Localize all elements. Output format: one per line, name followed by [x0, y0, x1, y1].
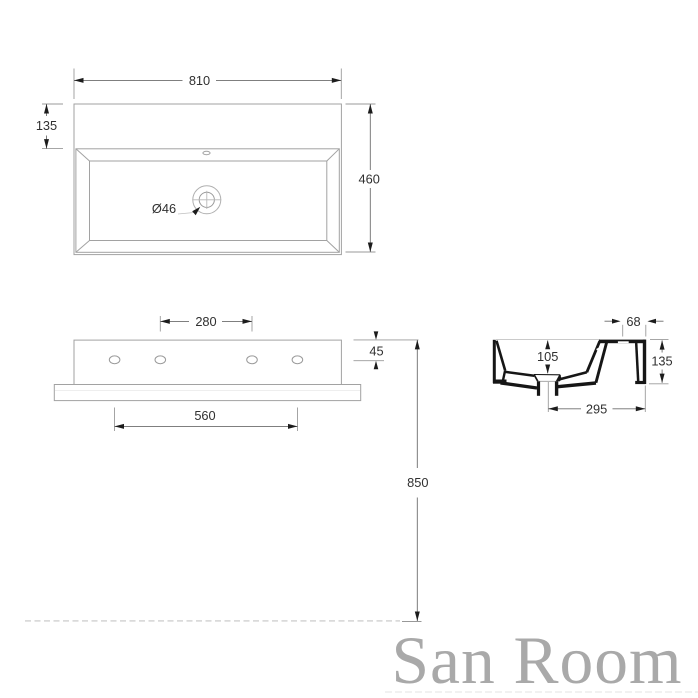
svg-text:295: 295 [586, 401, 607, 416]
svg-text:135: 135 [36, 118, 57, 133]
svg-text:San Room: San Room [392, 623, 682, 698]
svg-text:105: 105 [537, 349, 558, 364]
svg-text:45: 45 [369, 344, 383, 359]
svg-text:Ø46: Ø46 [152, 201, 176, 216]
svg-text:810: 810 [189, 73, 210, 88]
svg-text:460: 460 [359, 171, 380, 186]
svg-text:850: 850 [407, 475, 428, 490]
svg-text:135: 135 [651, 354, 672, 369]
svg-text:68: 68 [626, 314, 640, 329]
svg-text:280: 280 [195, 314, 216, 329]
svg-text:560: 560 [194, 408, 215, 423]
